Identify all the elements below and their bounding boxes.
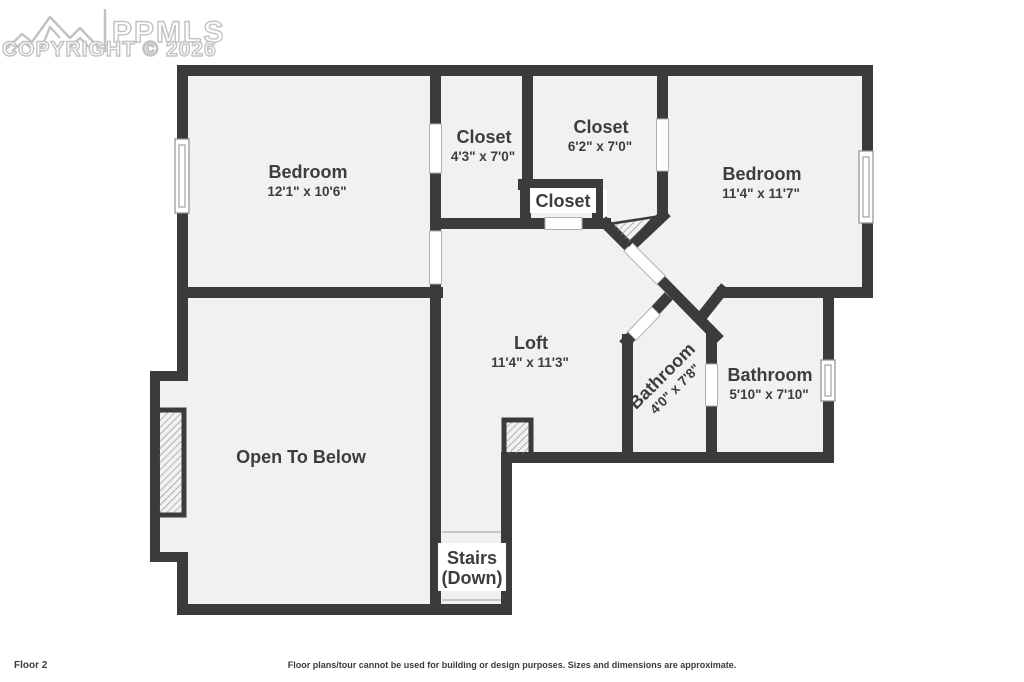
closet2-door [657,119,669,171]
loft-label: Loft [514,333,548,353]
wall-hallcloset-left [520,179,531,229]
wall-left-upper [177,65,188,381]
bedroom2-window [859,151,873,223]
closet1-label: Closet [456,127,511,147]
bathroom2-dims: 5'10" x 7'10" [729,387,808,402]
wall-closet2-right-a [657,65,668,119]
bedroom1-window [175,139,189,213]
closet1-dims: 4'3" x 7'0" [451,149,515,164]
bathroom2-label: Bathroom [728,365,813,385]
closet2-dims: 6'2" x 7'0" [568,139,632,154]
chimney-left [157,410,184,515]
bedroom1-door [430,231,442,284]
wall-bottom [177,604,512,615]
floor-label: Floor 2 [14,660,48,671]
floor-plan-page: PPMLS COPYRIGHT © 2026 [0,0,1024,682]
closet2-label: Closet [573,117,628,137]
chimney-loft-corner [504,420,531,456]
wall-center-a [430,65,441,124]
bedroom2-label: Bedroom [722,164,801,184]
wall-bath-divider-b [706,406,717,463]
open-to-below-label: Open To Below [236,447,367,467]
closet1-floor [436,70,530,224]
hall-closet-label: Closet [535,191,590,211]
wall-baths-bottom [502,452,834,463]
loft-dims: 11'4" x 11'3" [491,355,569,370]
stairs-direction-label: (Down) [442,568,503,588]
disclaimer-text: Floor plans/tour cannot be used for buil… [288,660,737,670]
watermark-copyright: COPYRIGHT © 2026 [2,38,217,61]
floor-plan-canvas: PPMLS COPYRIGHT © 2026 [0,0,1024,682]
bedroom1-label: Bedroom [268,162,347,182]
closet1-door [430,124,442,173]
bathroom2-door [706,364,718,406]
hall-closet-door [545,218,582,230]
stairs-label: Stairs [447,548,497,568]
wall-closet-divider [522,65,533,190]
wall-otb-top [177,287,443,298]
bedroom1-dims: 12'1" x 10'6" [267,184,346,199]
bedroom2-dims: 11'4" x 11'7" [722,186,800,201]
wall-bedroom2-bottom [717,287,873,298]
bathroom2-window [821,360,835,401]
